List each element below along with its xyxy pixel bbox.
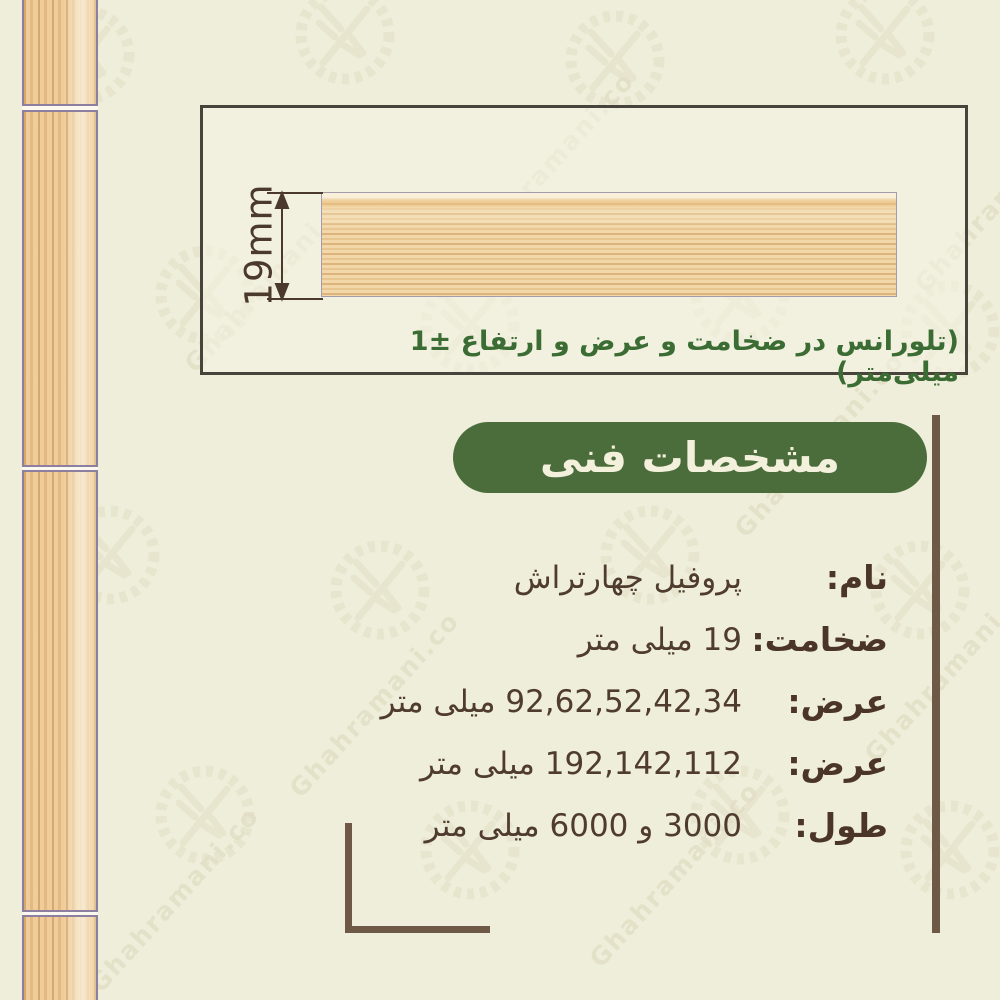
section-title-badge: مشخصات فنی [453,422,927,493]
spec-label-width-1: عرض: [787,679,888,725]
spec-value-name: پروفیل چهارتراش [514,555,742,601]
wood-strip [22,0,98,1000]
wood-plank [22,915,98,1000]
wood-plank [22,470,98,912]
vertical-divider-line [932,415,940,933]
watermark-sawblade-logo [285,0,405,99]
profile-diagram-box: 19mm (تلورانس در ضخامت و عرض و ارتفاع ±1… [200,105,968,375]
watermark-sawblade-logo [890,790,1000,914]
dimension-label: 19mm [238,183,281,306]
tolerance-note: (تلورانس در ضخامت و عرض و ارتفاع ±1 میلی… [399,326,959,388]
wood-profile-image [321,192,897,297]
page-background: Ghahramani.coGhahramani.coGhahramani.coG… [0,0,1000,1000]
watermark-sawblade-logo [825,0,945,99]
spec-label-name: نام: [826,555,888,601]
wood-plank [22,0,98,106]
spec-value-thickness: 19 میلی متر [578,617,742,663]
spec-label-width-2: عرض: [787,741,888,787]
section-title: مشخصات فنی [540,433,840,482]
spec-value-width-1: 92,62,52,42,34 میلی متر [381,679,743,725]
spec-value-width-2: 192,142,112 میلی متر [420,741,742,787]
spec-label-length: طول: [794,803,888,849]
spec-label-thickness: ضخامت: [751,617,888,663]
wood-plank [22,110,98,467]
corner-bracket [345,823,490,933]
